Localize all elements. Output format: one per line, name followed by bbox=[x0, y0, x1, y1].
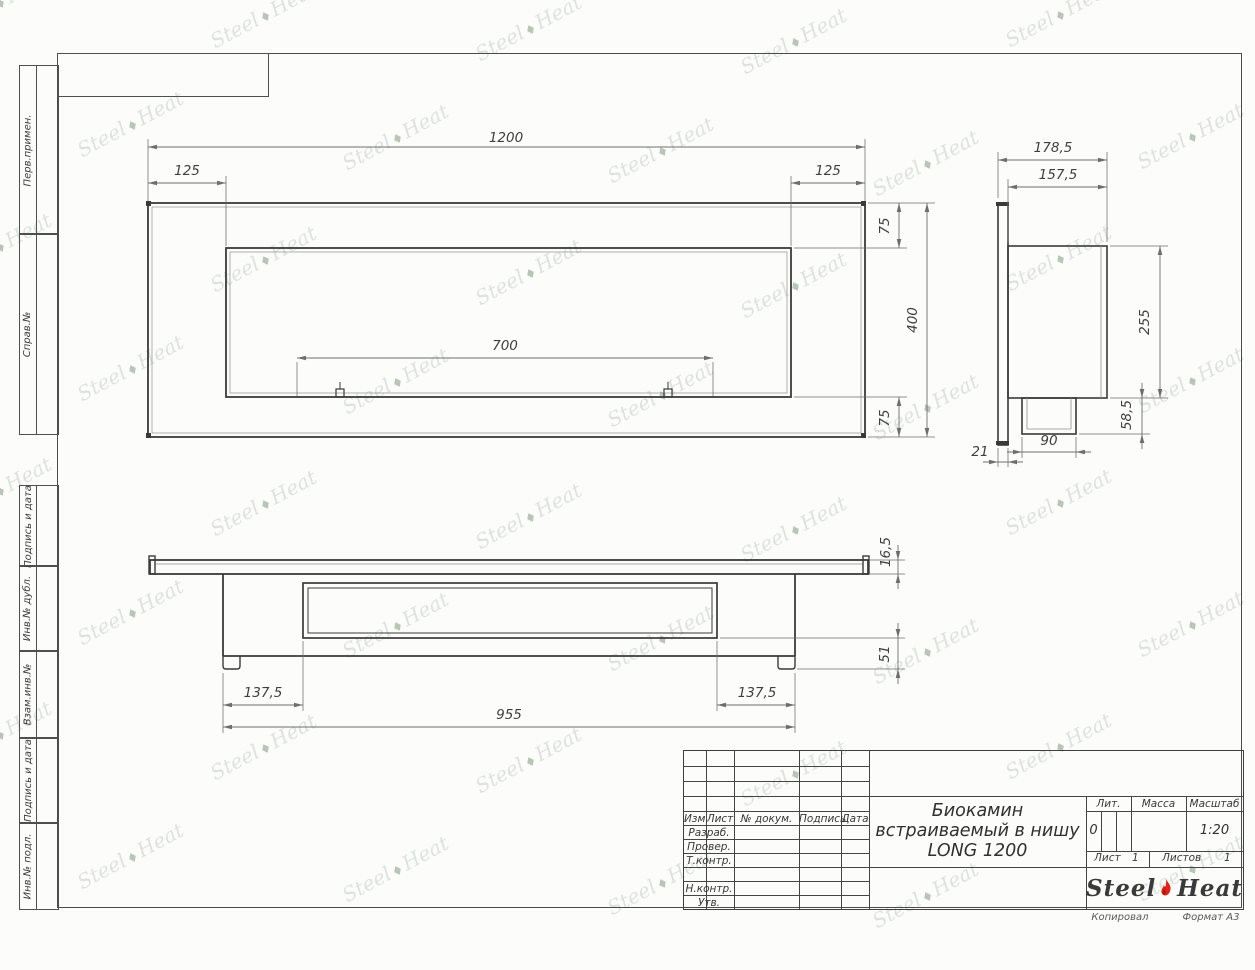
dimension-arrow bbox=[896, 551, 901, 560]
grid-line bbox=[684, 853, 869, 854]
lit-header: Лит. bbox=[1086, 798, 1131, 810]
company-logo: Steel Heat bbox=[1086, 867, 1243, 909]
front-view-outline bbox=[152, 207, 861, 433]
dimension-label: 125 bbox=[815, 163, 841, 179]
grid-line bbox=[799, 751, 800, 909]
mass-header: Масса bbox=[1131, 798, 1186, 810]
product-title: Биокамин встраиваемый в нишу LONG 1200 bbox=[869, 796, 1086, 866]
dimension-arrow bbox=[223, 725, 232, 730]
side-view-outline bbox=[998, 203, 1008, 445]
logo-word-heat: Heat bbox=[1177, 875, 1243, 902]
bottom-view-outline bbox=[150, 560, 868, 574]
dimension-arrow bbox=[1098, 158, 1107, 163]
front-view-corner bbox=[861, 433, 866, 438]
dimension-arrow bbox=[925, 203, 930, 212]
grid-line bbox=[684, 781, 869, 782]
dimension-arrow bbox=[1076, 450, 1085, 455]
dimension-arrow bbox=[223, 703, 232, 708]
grid-line bbox=[684, 825, 869, 826]
front-view-corner bbox=[146, 201, 151, 206]
dimension-label: 178,5 bbox=[1034, 140, 1073, 156]
dimension-arrow bbox=[925, 428, 930, 437]
col-header-sign: Подпись bbox=[799, 813, 841, 825]
dimension-arrow bbox=[998, 158, 1007, 163]
dimension-arrow bbox=[1140, 389, 1145, 398]
dimension-label: 16,5 bbox=[878, 537, 894, 567]
dimension-arrow bbox=[1013, 450, 1022, 455]
col-header-izm: Изм. bbox=[684, 813, 706, 825]
grid-line bbox=[1149, 851, 1150, 867]
side-view-corner bbox=[996, 202, 1009, 206]
dimension-label: 157,5 bbox=[1039, 167, 1078, 183]
front-view-outline bbox=[226, 248, 791, 397]
bottom-view-edge bbox=[223, 656, 240, 669]
bottom-view-outline bbox=[308, 588, 712, 633]
dimension-arrow bbox=[786, 725, 795, 730]
logo-word-steel: Steel bbox=[1086, 875, 1156, 902]
dimension-label: 75 bbox=[877, 409, 893, 426]
dimension-arrow bbox=[1098, 185, 1107, 190]
grid-line bbox=[684, 811, 869, 812]
grid-line bbox=[841, 751, 842, 909]
dimension-arrow bbox=[1158, 389, 1163, 398]
dimension-arrow bbox=[786, 703, 795, 708]
front-view-corner bbox=[146, 433, 151, 438]
dimension-arrow bbox=[1158, 246, 1163, 255]
sheets-label: Листов bbox=[1162, 852, 1201, 864]
sheet-value: 1 bbox=[1132, 852, 1139, 864]
dimension-arrow bbox=[294, 703, 303, 708]
dimension-arrow bbox=[896, 629, 901, 638]
side-view-corner bbox=[996, 441, 1009, 445]
dimension-label: 125 bbox=[174, 163, 200, 179]
dimension-label: 51 bbox=[877, 645, 893, 662]
bottom-view-outline bbox=[303, 583, 717, 638]
dimension-arrow bbox=[896, 574, 901, 583]
copied-note: Копировал bbox=[1090, 912, 1150, 923]
dimension-label: 255 bbox=[1137, 309, 1153, 335]
scale-value: 1:20 bbox=[1186, 823, 1243, 838]
dimension-label: 400 bbox=[905, 307, 921, 333]
col-header-docnum: № докум. bbox=[734, 813, 799, 825]
grid-line bbox=[734, 751, 735, 909]
grid-line bbox=[1086, 811, 1243, 812]
dimension-label: 90 bbox=[1040, 433, 1057, 449]
sheet-label: Лист bbox=[1094, 852, 1121, 864]
grid-line bbox=[684, 881, 869, 882]
dimension-arrow bbox=[856, 145, 865, 150]
dimension-arrow bbox=[791, 181, 800, 186]
front-view-corner bbox=[861, 201, 866, 206]
role-razrab: Разраб. bbox=[684, 827, 734, 839]
grid-line bbox=[684, 895, 869, 896]
col-header-list: Лист bbox=[706, 813, 734, 825]
dimension-arrow bbox=[897, 203, 902, 212]
dimension-arrow bbox=[717, 703, 726, 708]
dimension-label: 700 bbox=[492, 338, 518, 354]
grid-line bbox=[684, 839, 869, 840]
grid-line bbox=[684, 766, 869, 767]
dimension-arrow bbox=[897, 239, 902, 248]
dimension-arrow bbox=[897, 397, 902, 406]
product-title-line3: LONG 1200 bbox=[928, 841, 1028, 861]
dimension-label: 21 bbox=[971, 444, 988, 460]
sheets-value: 1 bbox=[1224, 852, 1231, 864]
bottom-view-edge bbox=[778, 656, 795, 669]
dimension-arrow bbox=[989, 460, 998, 465]
dimension-arrow bbox=[896, 669, 901, 678]
dimension-label: 137,5 bbox=[738, 685, 777, 701]
format-note: Формат А3 bbox=[1180, 912, 1242, 923]
drawing-sheet: Steel♦HeatSteel♦HeatSteel♦HeatSteel♦Heat… bbox=[0, 0, 1255, 970]
role-utv: Утв. bbox=[684, 897, 734, 909]
grid-line bbox=[1101, 811, 1102, 851]
front-view-outline bbox=[148, 203, 865, 437]
role-nkontr: Н.контр. bbox=[684, 883, 734, 895]
lit-value: 0 bbox=[1086, 823, 1101, 838]
grid-line bbox=[1116, 811, 1117, 851]
side-view-outline bbox=[1008, 246, 1107, 398]
dimension-arrow bbox=[897, 428, 902, 437]
role-tkontr: Т.контр. bbox=[684, 855, 734, 867]
dimension-arrow bbox=[1140, 434, 1145, 443]
dimension-arrow bbox=[1008, 185, 1017, 190]
dimension-label: 137,5 bbox=[244, 685, 283, 701]
dimension-arrow bbox=[1008, 460, 1017, 465]
dimension-label: 75 bbox=[877, 217, 893, 234]
dimension-arrow bbox=[148, 181, 157, 186]
col-header-date: Дата bbox=[841, 813, 869, 825]
role-prover: Провер. bbox=[684, 841, 734, 853]
dimension-label: 1200 bbox=[489, 130, 523, 146]
product-title-line2: встраиваемый в нишу bbox=[875, 821, 1079, 841]
dimension-arrow bbox=[704, 356, 713, 361]
flame-icon bbox=[1159, 874, 1174, 902]
dimension-arrow bbox=[217, 181, 226, 186]
dimension-arrow bbox=[297, 356, 306, 361]
title-block: Изм. Лист № докум. Подпись Дата Разраб. … bbox=[683, 750, 1244, 910]
product-title-line1: Биокамин bbox=[932, 801, 1023, 821]
grid-line bbox=[684, 867, 869, 868]
scale-header: Масштаб bbox=[1186, 798, 1243, 810]
dimension-label: 58,5 bbox=[1119, 400, 1135, 430]
front-view-outline bbox=[230, 252, 787, 393]
dimension-label: 955 bbox=[496, 707, 522, 723]
dimension-arrow bbox=[856, 181, 865, 186]
dimension-arrow bbox=[148, 145, 157, 150]
